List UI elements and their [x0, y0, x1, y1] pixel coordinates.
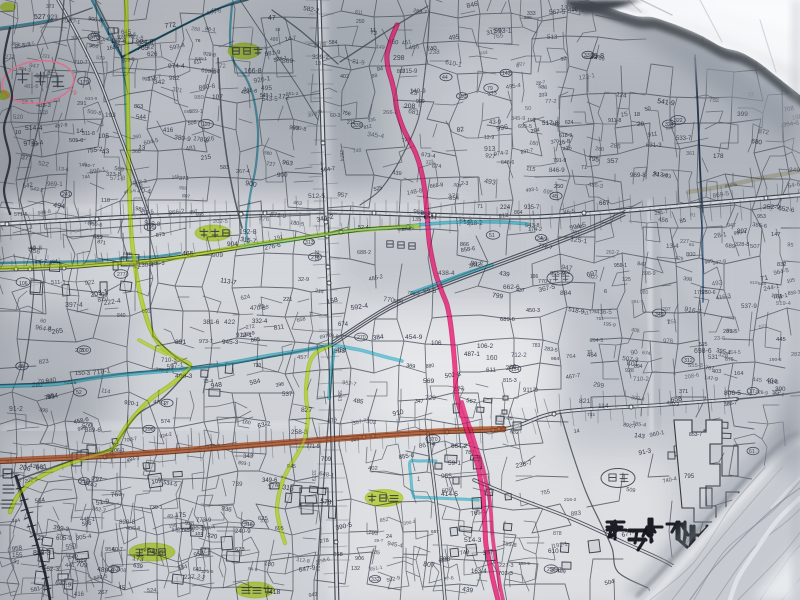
svg-text:571-8: 571-8 [110, 176, 126, 182]
svg-text:34: 34 [537, 236, 543, 242]
svg-text:806-5: 806-5 [724, 390, 741, 397]
svg-text:662-6: 662-6 [503, 284, 520, 291]
svg-text:250: 250 [356, 19, 365, 25]
svg-text:913: 913 [484, 146, 496, 153]
svg-text:880: 880 [425, 363, 434, 370]
svg-text:585: 585 [123, 251, 131, 257]
svg-text:519-4: 519-4 [776, 301, 792, 307]
svg-text:525: 525 [699, 342, 708, 348]
svg-text:51: 51 [489, 233, 495, 239]
svg-text:683: 683 [510, 429, 519, 436]
svg-text:869: 869 [282, 58, 293, 65]
svg-text:61: 61 [689, 242, 695, 248]
svg-text:821: 821 [579, 398, 591, 405]
svg-text:433-3: 433-3 [36, 103, 51, 109]
svg-text:605: 605 [504, 415, 513, 422]
svg-text:270: 270 [357, 335, 366, 341]
svg-text:529: 529 [77, 558, 87, 564]
svg-text:687: 687 [431, 529, 439, 534]
svg-text:505-6: 505-6 [69, 138, 83, 144]
svg-text:280: 280 [595, 146, 605, 153]
svg-text:17: 17 [749, 389, 755, 395]
svg-text:107: 107 [212, 94, 223, 101]
svg-text:18: 18 [275, 27, 281, 32]
svg-text:60-7: 60-7 [85, 163, 95, 169]
svg-text:195: 195 [146, 225, 155, 231]
svg-text:976: 976 [663, 338, 674, 345]
svg-text:241: 241 [62, 192, 71, 198]
svg-text:3379: 3379 [310, 470, 316, 481]
svg-text:852: 852 [379, 517, 389, 524]
svg-text:370: 370 [429, 437, 438, 443]
svg-text:524: 524 [147, 588, 156, 594]
svg-text:200: 200 [80, 348, 89, 354]
svg-text:664-2: 664-2 [451, 443, 468, 450]
svg-text:631-3: 631-3 [646, 142, 662, 149]
svg-text:2804: 2804 [314, 560, 320, 571]
svg-text:106: 106 [19, 281, 28, 287]
svg-text:900: 900 [277, 172, 288, 179]
svg-text:564: 564 [34, 497, 46, 505]
svg-text:369: 369 [406, 363, 416, 370]
svg-text:818: 818 [750, 280, 758, 285]
svg-text:142: 142 [502, 71, 511, 77]
svg-text:537-9: 537-9 [741, 303, 757, 310]
svg-text:533-7: 533-7 [676, 136, 692, 142]
svg-text:853-7: 853-7 [689, 432, 702, 438]
svg-text:250-6: 250-6 [702, 290, 716, 296]
svg-text:227: 227 [184, 574, 195, 581]
svg-text:980: 980 [640, 290, 649, 296]
svg-text:277: 277 [117, 272, 126, 278]
svg-text:398: 398 [683, 276, 693, 283]
svg-text:296: 296 [145, 427, 154, 433]
svg-text:416: 416 [74, 592, 85, 598]
svg-text:45: 45 [552, 194, 558, 200]
svg-text:318: 318 [244, 522, 253, 528]
svg-text:79: 79 [70, 91, 77, 97]
svg-text:10: 10 [15, 130, 21, 136]
svg-text:974-4: 974-4 [168, 63, 185, 70]
svg-text:13-4: 13-4 [666, 243, 679, 250]
svg-text:114: 114 [598, 403, 609, 410]
svg-text:147: 147 [771, 232, 781, 238]
svg-text:44: 44 [442, 75, 448, 81]
svg-text:357: 357 [607, 158, 618, 165]
svg-text:79: 79 [487, 86, 493, 92]
svg-text:371: 371 [679, 389, 688, 395]
svg-text:624: 624 [565, 120, 574, 126]
svg-text:674: 674 [338, 322, 349, 328]
svg-text:745-6: 745-6 [181, 528, 194, 534]
svg-text:18: 18 [634, 112, 640, 118]
svg-text:321: 321 [172, 86, 184, 94]
svg-text:893: 893 [334, 348, 345, 355]
svg-text:288: 288 [191, 26, 201, 33]
svg-text:864: 864 [514, 210, 523, 216]
svg-text:953: 953 [757, 214, 766, 220]
svg-text:751: 751 [596, 316, 604, 321]
svg-text:863: 863 [134, 104, 143, 110]
svg-text:311-8: 311-8 [82, 131, 95, 137]
svg-text:422: 422 [224, 319, 235, 326]
svg-text:811: 811 [273, 324, 285, 332]
svg-text:894: 894 [634, 364, 643, 370]
svg-text:878: 878 [553, 531, 562, 537]
svg-text:815-3: 815-3 [503, 378, 517, 384]
svg-text:192-8: 192-8 [239, 229, 257, 236]
svg-text:709: 709 [321, 456, 332, 463]
svg-text:969-8: 969-8 [630, 172, 646, 179]
svg-text:402: 402 [340, 74, 349, 80]
svg-text:180: 180 [264, 560, 276, 568]
svg-text:267: 267 [98, 590, 108, 596]
svg-text:114: 114 [511, 367, 519, 373]
svg-text:110: 110 [101, 198, 110, 204]
svg-text:150-3: 150-3 [75, 371, 91, 377]
svg-text:313: 313 [305, 240, 314, 246]
svg-text:911-9: 911-9 [523, 388, 539, 394]
svg-text:771-5: 771-5 [306, 444, 320, 450]
svg-text:39-7: 39-7 [374, 538, 384, 543]
svg-text:884: 884 [560, 290, 572, 297]
svg-text:846-9: 846-9 [549, 167, 565, 174]
svg-text:190-8: 190-8 [769, 357, 782, 363]
svg-text:544: 544 [136, 115, 147, 121]
svg-text:982: 982 [169, 75, 180, 82]
svg-text:640: 640 [193, 567, 202, 573]
svg-text:345-9: 345-9 [511, 116, 525, 122]
svg-text:402: 402 [368, 466, 378, 472]
svg-text:193: 193 [458, 94, 467, 100]
svg-text:71: 71 [581, 165, 587, 171]
svg-text:773-9: 773-9 [196, 518, 212, 524]
svg-text:267-4: 267-4 [236, 169, 250, 175]
svg-text:60-3: 60-3 [330, 113, 340, 119]
svg-text:332: 332 [371, 577, 380, 583]
svg-text:495: 495 [261, 85, 272, 92]
svg-text:543-5: 543-5 [262, 96, 278, 103]
svg-text:912-1: 912-1 [236, 332, 253, 339]
svg-text:52: 52 [76, 390, 82, 396]
svg-text:164: 164 [734, 371, 744, 377]
svg-text:14: 14 [76, 128, 84, 135]
svg-text:583: 583 [220, 165, 229, 171]
svg-text:221: 221 [42, 53, 51, 60]
svg-text:828-8: 828-8 [119, 519, 136, 526]
svg-text:114-5: 114-5 [728, 350, 741, 356]
svg-text:584: 584 [329, 40, 338, 46]
svg-text:91-2: 91-2 [9, 406, 23, 413]
svg-text:954: 954 [105, 547, 116, 553]
svg-text:49-4: 49-4 [167, 514, 178, 520]
svg-text:463: 463 [293, 200, 303, 207]
svg-text:739-1: 739-1 [149, 505, 163, 511]
svg-text:135: 135 [412, 217, 421, 223]
svg-text:609: 609 [441, 487, 453, 495]
svg-text:125: 125 [622, 277, 631, 283]
svg-text:486: 486 [270, 37, 279, 43]
svg-text:221: 221 [283, 297, 292, 303]
svg-text:105: 105 [98, 133, 109, 140]
svg-text:389-6: 389-6 [85, 427, 101, 434]
svg-text:166-8: 166-8 [244, 68, 262, 75]
svg-text:710-2: 710-2 [633, 376, 649, 383]
svg-text:315-9: 315-9 [402, 69, 418, 75]
svg-text:227: 227 [680, 239, 689, 245]
svg-text:598: 598 [439, 556, 451, 563]
svg-text:795: 795 [684, 473, 695, 480]
svg-text:115: 115 [526, 166, 536, 173]
svg-text:110: 110 [202, 122, 210, 128]
svg-text:132: 132 [351, 566, 360, 572]
svg-text:404: 404 [241, 90, 250, 96]
svg-text:368: 368 [132, 149, 141, 155]
svg-text:102: 102 [195, 531, 203, 537]
svg-text:50: 50 [525, 106, 531, 112]
svg-text:457: 457 [297, 355, 307, 361]
svg-text:514-3: 514-3 [464, 537, 482, 544]
svg-text:897: 897 [737, 228, 748, 235]
svg-text:959-1: 959-1 [614, 263, 627, 269]
svg-text:24: 24 [386, 534, 392, 540]
svg-text:513: 513 [547, 34, 558, 41]
svg-text:729: 729 [425, 395, 436, 402]
svg-text:224: 224 [500, 204, 511, 211]
svg-text:23-6: 23-6 [714, 336, 725, 342]
svg-text:32-9: 32-9 [298, 277, 309, 283]
svg-text:2874: 2874 [338, 150, 344, 161]
svg-text:23: 23 [410, 89, 419, 97]
svg-text:77-2: 77-2 [545, 99, 557, 105]
svg-text:312: 312 [684, 358, 693, 364]
svg-text:48: 48 [18, 364, 24, 370]
svg-text:906: 906 [355, 556, 364, 562]
svg-text:868: 868 [333, 552, 344, 558]
svg-text:520: 520 [13, 114, 24, 121]
svg-text:764: 764 [566, 354, 577, 360]
svg-text:505: 505 [187, 120, 197, 127]
svg-text:336: 336 [71, 36, 82, 42]
svg-text:186-5: 186-5 [518, 561, 530, 566]
svg-text:160: 160 [486, 355, 498, 362]
svg-text:178: 178 [39, 110, 48, 116]
svg-text:2591: 2591 [313, 250, 319, 261]
svg-text:50: 50 [644, 106, 651, 113]
svg-text:445: 445 [776, 337, 787, 343]
svg-text:272: 272 [5, 55, 16, 61]
svg-text:579: 579 [96, 55, 105, 62]
svg-text:574: 574 [161, 419, 170, 425]
svg-text:648-6: 648-6 [501, 160, 514, 166]
svg-text:227-3: 227-3 [499, 563, 514, 569]
svg-text:569: 569 [423, 378, 434, 385]
svg-text:212: 212 [80, 479, 89, 485]
svg-text:688-2: 688-2 [357, 250, 371, 256]
svg-text:674: 674 [432, 164, 441, 170]
svg-text:891: 891 [175, 339, 186, 346]
svg-text:546-1: 546-1 [195, 56, 207, 61]
svg-text:571-5: 571-5 [14, 212, 28, 218]
svg-text:436-5: 436-5 [596, 309, 612, 316]
svg-text:689-6: 689-6 [500, 317, 515, 323]
svg-text:6: 6 [604, 289, 607, 295]
svg-text:91: 91 [13, 559, 20, 566]
svg-text:298: 298 [393, 55, 405, 62]
svg-text:29: 29 [637, 121, 645, 128]
svg-text:76: 76 [195, 38, 201, 44]
svg-text:238: 238 [429, 49, 440, 56]
svg-text:928: 928 [625, 368, 634, 374]
svg-text:731: 731 [587, 412, 595, 418]
svg-text:774-7: 774-7 [84, 220, 97, 226]
svg-text:958: 958 [11, 545, 23, 553]
svg-text:240-9: 240-9 [235, 528, 251, 535]
svg-text:794: 794 [317, 109, 325, 115]
svg-text:179: 179 [80, 80, 89, 86]
svg-text:59-1: 59-1 [448, 460, 461, 467]
svg-text:398-9: 398-9 [642, 271, 656, 277]
svg-text:3843: 3843 [336, 390, 342, 401]
svg-text:372: 372 [448, 193, 459, 200]
svg-text:883: 883 [570, 510, 582, 518]
svg-text:712-2: 712-2 [511, 352, 527, 359]
svg-text:339: 339 [353, 123, 362, 129]
svg-text:376-5: 376-5 [201, 569, 214, 575]
svg-text:216-2: 216-2 [564, 497, 577, 503]
svg-text:800: 800 [686, 252, 696, 258]
svg-text:842: 842 [637, 261, 647, 268]
svg-text:208: 208 [404, 103, 415, 110]
svg-text:618-9: 618-9 [559, 133, 572, 139]
svg-text:752: 752 [709, 97, 720, 104]
svg-text:866: 866 [460, 242, 469, 248]
svg-text:14: 14 [573, 428, 580, 435]
svg-text:611: 611 [486, 367, 497, 374]
svg-text:481-6: 481-6 [24, 84, 38, 90]
svg-text:349-6: 349-6 [262, 478, 278, 484]
svg-text:935-7: 935-7 [524, 205, 540, 211]
svg-text:973-7: 973-7 [199, 339, 213, 345]
svg-text:667: 667 [599, 200, 610, 207]
svg-text:994: 994 [551, 356, 559, 362]
svg-text:626: 626 [147, 51, 158, 58]
svg-text:980: 980 [194, 95, 204, 101]
svg-text:72: 72 [219, 63, 226, 70]
svg-text:623: 623 [235, 547, 245, 553]
svg-text:441: 441 [65, 563, 75, 569]
svg-text:238: 238 [524, 15, 532, 20]
svg-text:537: 537 [282, 391, 293, 398]
svg-text:361: 361 [686, 151, 695, 157]
svg-text:47: 47 [268, 15, 276, 22]
svg-text:33: 33 [584, 53, 590, 59]
svg-text:322: 322 [674, 118, 683, 124]
svg-text:262-2: 262-2 [606, 250, 619, 256]
svg-text:911-8: 911-8 [608, 118, 621, 124]
svg-text:969-1: 969-1 [47, 181, 63, 188]
svg-text:511-1: 511-1 [51, 280, 66, 286]
svg-text:512-5: 512-5 [308, 193, 325, 200]
svg-text:94: 94 [376, 66, 383, 73]
svg-text:106: 106 [431, 340, 442, 347]
svg-text:999: 999 [416, 99, 425, 105]
svg-text:605-9: 605-9 [56, 535, 72, 542]
svg-text:933-9: 933-9 [85, 96, 98, 102]
svg-text:514-4: 514-4 [25, 125, 43, 132]
svg-text:454-9: 454-9 [405, 334, 423, 341]
svg-text:397-4: 397-4 [65, 302, 83, 309]
svg-text:698-6: 698-6 [694, 348, 712, 355]
svg-text:710-7: 710-7 [74, 60, 88, 66]
svg-text:13: 13 [315, 61, 321, 67]
svg-text:155: 155 [12, 552, 23, 559]
svg-text:193: 193 [105, 112, 116, 119]
svg-text:347: 347 [415, 399, 424, 405]
svg-text:947: 947 [727, 223, 736, 229]
svg-text:373: 373 [179, 176, 189, 182]
svg-text:17: 17 [163, 401, 169, 407]
svg-text:964: 964 [89, 43, 99, 50]
svg-text:416: 416 [163, 127, 174, 134]
svg-text:278: 278 [319, 538, 329, 545]
svg-text:12-9: 12-9 [484, 135, 494, 141]
svg-text:332-4: 332-4 [252, 319, 268, 325]
svg-text:373: 373 [46, 4, 55, 10]
svg-text:450-3: 450-3 [526, 308, 540, 314]
svg-text:689-1: 689-1 [189, 109, 203, 115]
svg-text:955: 955 [441, 473, 452, 480]
svg-text:487-1: 487-1 [464, 351, 480, 358]
svg-text:252-9: 252-9 [763, 204, 780, 211]
svg-text:294-5: 294-5 [590, 338, 603, 344]
svg-text:342: 342 [551, 121, 561, 128]
svg-text:832: 832 [777, 262, 786, 268]
svg-text:470-6: 470-6 [250, 305, 266, 312]
svg-text:203: 203 [538, 92, 547, 99]
svg-text:945-3: 945-3 [222, 339, 239, 346]
svg-text:163-4: 163-4 [471, 568, 487, 575]
svg-text:106-2: 106-2 [477, 343, 494, 350]
svg-text:149: 149 [376, 44, 385, 51]
svg-text:43-9: 43-9 [489, 120, 502, 126]
svg-text:343: 343 [243, 453, 254, 460]
svg-text:202-5: 202-5 [213, 219, 228, 225]
svg-text:250: 250 [554, 184, 563, 190]
svg-text:507: 507 [750, 244, 760, 250]
svg-text:596: 596 [394, 299, 403, 305]
svg-text:403: 403 [712, 369, 721, 375]
svg-text:438-4: 438-4 [438, 270, 455, 277]
svg-text:61: 61 [690, 212, 697, 219]
svg-text:674: 674 [642, 350, 651, 357]
svg-text:349: 349 [655, 312, 664, 318]
svg-text:406-4: 406-4 [126, 526, 140, 532]
svg-text:783: 783 [532, 343, 541, 349]
svg-text:730: 730 [253, 363, 262, 369]
svg-text:252: 252 [110, 567, 119, 573]
svg-text:739: 739 [232, 481, 243, 488]
svg-text:2-3: 2-3 [461, 181, 468, 187]
svg-text:328-8: 328-8 [735, 242, 749, 248]
svg-text:840: 840 [117, 313, 126, 319]
svg-text:370: 370 [90, 35, 99, 41]
svg-text:651-2: 651-2 [286, 91, 299, 97]
svg-text:652: 652 [726, 328, 736, 335]
svg-text:256: 256 [547, 567, 556, 573]
svg-text:527: 527 [34, 14, 46, 21]
svg-text:448-1: 448-1 [80, 517, 95, 523]
